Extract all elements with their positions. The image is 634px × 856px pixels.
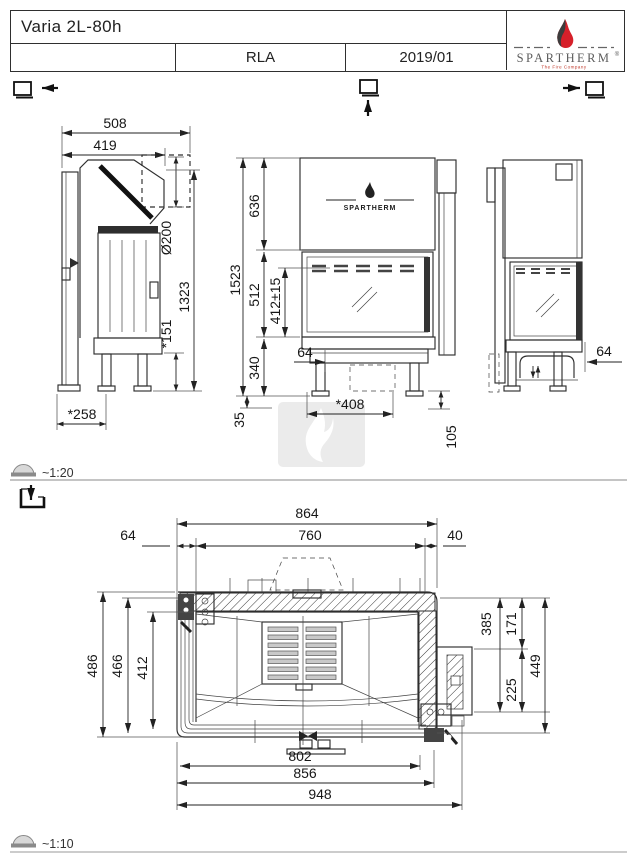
dim-512: 512 bbox=[246, 283, 262, 307]
dim-105: 105 bbox=[443, 425, 459, 449]
scale-row-lower: ~1:10 bbox=[10, 836, 627, 853]
dim-760: 760 bbox=[298, 527, 322, 543]
dim-449: 449 bbox=[527, 654, 543, 678]
dim-508: 508 bbox=[103, 115, 127, 131]
spartherm-logo-icon: SPARTHERM ® The Fire Company bbox=[507, 11, 624, 70]
technical-drawing-canvas: 508 419 Ø200 1323 *151 *258 SPARTHERM bbox=[0, 0, 634, 856]
protractor-icon bbox=[11, 465, 36, 477]
brand-name: SPARTHERM bbox=[517, 51, 612, 65]
dim-385: 385 bbox=[478, 612, 494, 636]
dim-171: 171 bbox=[503, 612, 519, 636]
dim-151: *151 bbox=[158, 319, 174, 348]
dim-412-plan: 412 bbox=[134, 656, 150, 680]
dim-466: 466 bbox=[109, 654, 125, 678]
brand-tagline: The Fire Company bbox=[541, 65, 587, 70]
dim-64-plan: 64 bbox=[120, 527, 136, 543]
section-view-icon bbox=[21, 485, 44, 507]
dim-419: 419 bbox=[93, 137, 117, 153]
dim-636: 636 bbox=[246, 194, 262, 218]
dim-856: 856 bbox=[293, 765, 317, 781]
titleblock-cell-revision: RLA bbox=[176, 44, 346, 71]
view-direction-front-icon bbox=[360, 80, 379, 116]
dim-412: 412±15 bbox=[267, 277, 283, 324]
dim-486: 486 bbox=[84, 654, 100, 678]
titleblock: Varia 2L-80h RLA 2019/01 SPARTHERM ® The… bbox=[10, 10, 625, 72]
dim-225: 225 bbox=[503, 678, 519, 702]
page-title: Varia 2L-80h bbox=[21, 17, 122, 37]
dim-35: 35 bbox=[231, 412, 247, 428]
dim-64-front: 64 bbox=[297, 344, 313, 360]
scale-label-lower: ~1:10 bbox=[42, 837, 74, 851]
dim-64-right: 64 bbox=[596, 343, 612, 359]
dim-802: 802 bbox=[288, 748, 312, 764]
titleblock-cell-empty bbox=[11, 44, 176, 71]
dim-340: 340 bbox=[246, 356, 262, 380]
titleblock-cell-date: 2019/01 bbox=[346, 44, 507, 71]
side-view-right: 64 bbox=[487, 160, 622, 392]
dim-1323: 1323 bbox=[176, 281, 192, 312]
view-direction-left-icon bbox=[14, 82, 58, 98]
protractor-icon-lower bbox=[11, 836, 36, 848]
dim-258: *258 bbox=[68, 406, 97, 422]
dim-948: 948 bbox=[308, 786, 332, 802]
front-logo: SPARTHERM bbox=[326, 182, 414, 212]
view-direction-right-icon bbox=[563, 82, 605, 98]
drawing-sheet: 508 419 Ø200 1323 *151 *258 SPARTHERM bbox=[0, 0, 634, 856]
dim-408: *408 bbox=[336, 396, 365, 412]
front-view: SPARTHERM 1523 636 512 340 bbox=[227, 158, 459, 449]
brand-registered-mark: ® bbox=[615, 51, 620, 58]
front-logo-text: SPARTHERM bbox=[344, 205, 397, 212]
dim-1523: 1523 bbox=[227, 264, 243, 295]
dim-40: 40 bbox=[447, 527, 463, 543]
brand-logo: SPARTHERM ® The Fire Company bbox=[506, 11, 624, 70]
dim-200: Ø200 bbox=[158, 221, 174, 255]
side-view-left: 508 419 Ø200 1323 *151 *258 bbox=[57, 115, 202, 430]
scale-label-upper: ~1:20 bbox=[42, 466, 74, 480]
plan-view: 864 760 64 40 486 466 412 385 171 225 44 bbox=[84, 505, 550, 810]
dim-864: 864 bbox=[295, 505, 319, 521]
